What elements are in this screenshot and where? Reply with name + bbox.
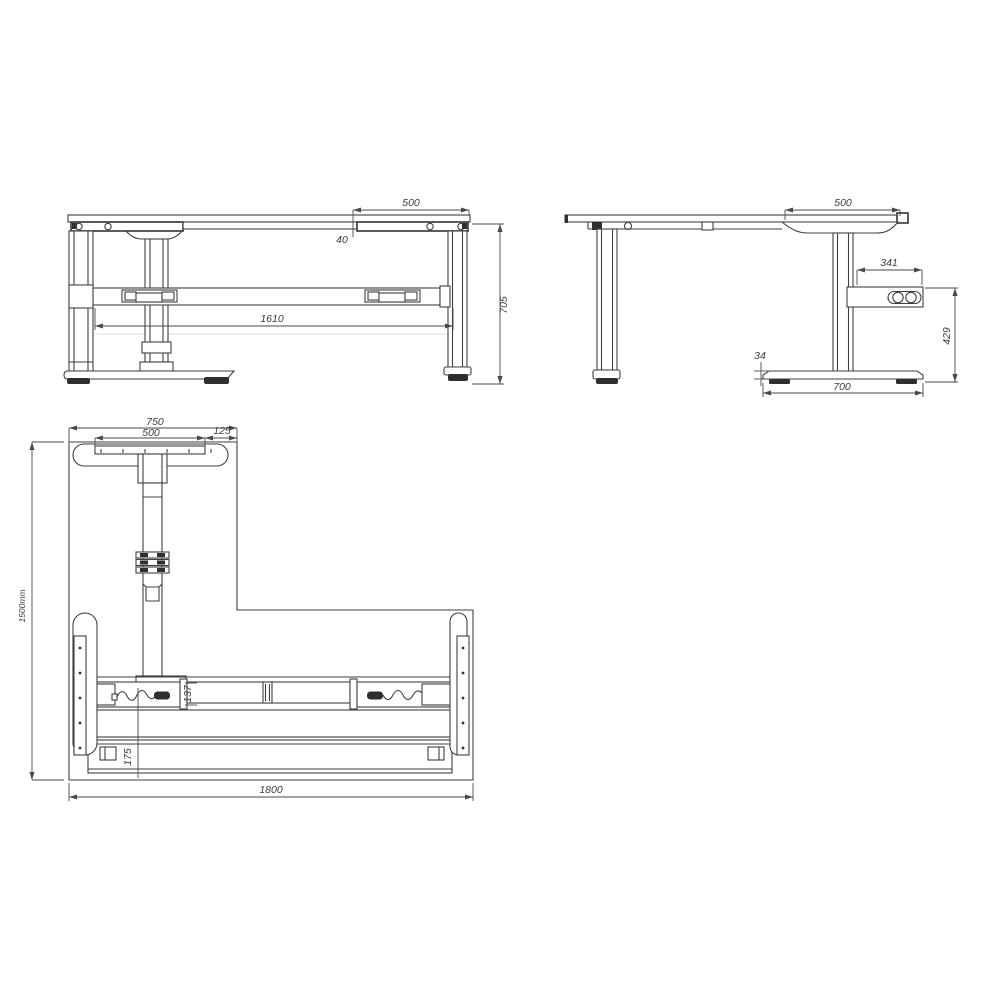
right-foot-pad bbox=[448, 374, 468, 381]
right-foot-rail bbox=[457, 636, 469, 755]
crossbar-bracket-right bbox=[365, 290, 420, 302]
foot-pad bbox=[896, 379, 917, 384]
dim-label-700-side: 700 bbox=[833, 381, 851, 393]
dim-label-429-side: 429 bbox=[941, 327, 953, 345]
dim-label-341-side: 341 bbox=[880, 257, 898, 269]
mounting-rail-left bbox=[71, 222, 183, 231]
crossbar-right-cap bbox=[440, 286, 450, 307]
foot-pad bbox=[596, 378, 618, 384]
left-foot-cap-side bbox=[593, 370, 620, 379]
front-view: 500 40 1610 705 bbox=[64, 197, 510, 384]
dim-label-1610-front: 1610 bbox=[260, 313, 284, 325]
column-plan bbox=[143, 483, 162, 676]
dim-label-34-side: 34 bbox=[754, 350, 766, 362]
rail-clip bbox=[702, 222, 713, 230]
mounting-rail-center bbox=[183, 222, 357, 229]
dimension-34-side: 34 bbox=[754, 350, 768, 386]
leg-top-bracket-side bbox=[782, 222, 898, 233]
side-view: 500 341 429 34 700 bbox=[565, 197, 958, 397]
dim-label-705-front: 705 bbox=[498, 296, 510, 314]
dim-label-125-plan: 125 bbox=[213, 425, 231, 437]
crossbar-divider-right bbox=[350, 679, 357, 709]
foot-bar-side bbox=[763, 371, 923, 379]
right-leg-front bbox=[448, 231, 467, 367]
mounting-rail-right bbox=[357, 222, 468, 231]
left-foot-rail bbox=[74, 636, 86, 755]
bottom-beam-bracket-right bbox=[428, 747, 444, 760]
tabletop-front bbox=[68, 215, 470, 222]
dim-label-137-plan: 137 bbox=[182, 684, 194, 703]
column-sleeve bbox=[142, 342, 171, 353]
beam-connector bbox=[263, 682, 272, 703]
dimension-341-side: 341 bbox=[857, 257, 922, 285]
column-top-bracket bbox=[126, 231, 182, 239]
foot-pad bbox=[769, 379, 790, 384]
dimension-125-plan: 125 bbox=[205, 425, 237, 438]
crossbar-left-cap bbox=[69, 285, 93, 308]
tabletop-end-tick bbox=[565, 215, 568, 223]
dim-label-175-plan: 175 bbox=[122, 748, 134, 766]
right-foot-cap bbox=[444, 367, 471, 375]
dimension-705-front: 705 bbox=[472, 224, 510, 384]
dim-label-1800-plan: 1800 bbox=[259, 784, 283, 796]
lower-beam bbox=[88, 710, 452, 737]
cable-connector bbox=[367, 692, 383, 700]
tabletop-side bbox=[565, 215, 905, 222]
bottom-beam bbox=[88, 740, 452, 773]
foot-pad bbox=[204, 377, 229, 384]
dimension-429-side: 429 bbox=[925, 288, 958, 382]
dim-label-500-plan: 500 bbox=[142, 427, 160, 439]
dim-label-1500-plan: 1500mm bbox=[17, 589, 27, 622]
cable-connector bbox=[154, 692, 170, 700]
dimension-1800-plan: 1800 bbox=[69, 783, 473, 801]
dimension-1500-plan: 1500mm bbox=[17, 442, 64, 780]
dim-label-500-front: 500 bbox=[402, 197, 420, 209]
left-leg-side bbox=[597, 229, 617, 370]
crossbar-right-box bbox=[357, 682, 455, 707]
dim-label-500-side: 500 bbox=[834, 197, 852, 209]
column-clamp bbox=[136, 552, 169, 573]
foot-pad bbox=[67, 378, 90, 384]
column-foot-cap bbox=[140, 362, 173, 371]
dim-label-40-front: 40 bbox=[336, 234, 348, 246]
column-top-plan bbox=[138, 454, 167, 483]
rail-end-block bbox=[462, 223, 467, 229]
crossbar-bracket-left bbox=[122, 290, 177, 302]
plan-view: 750 500 125 1500mm 137 bbox=[17, 416, 473, 801]
bottom-beam-bracket-left bbox=[100, 747, 116, 760]
desk-technical-drawing: 500 40 1610 705 bbox=[0, 0, 1000, 1000]
technical-drawing-page: 500 40 1610 705 bbox=[0, 0, 1000, 1000]
